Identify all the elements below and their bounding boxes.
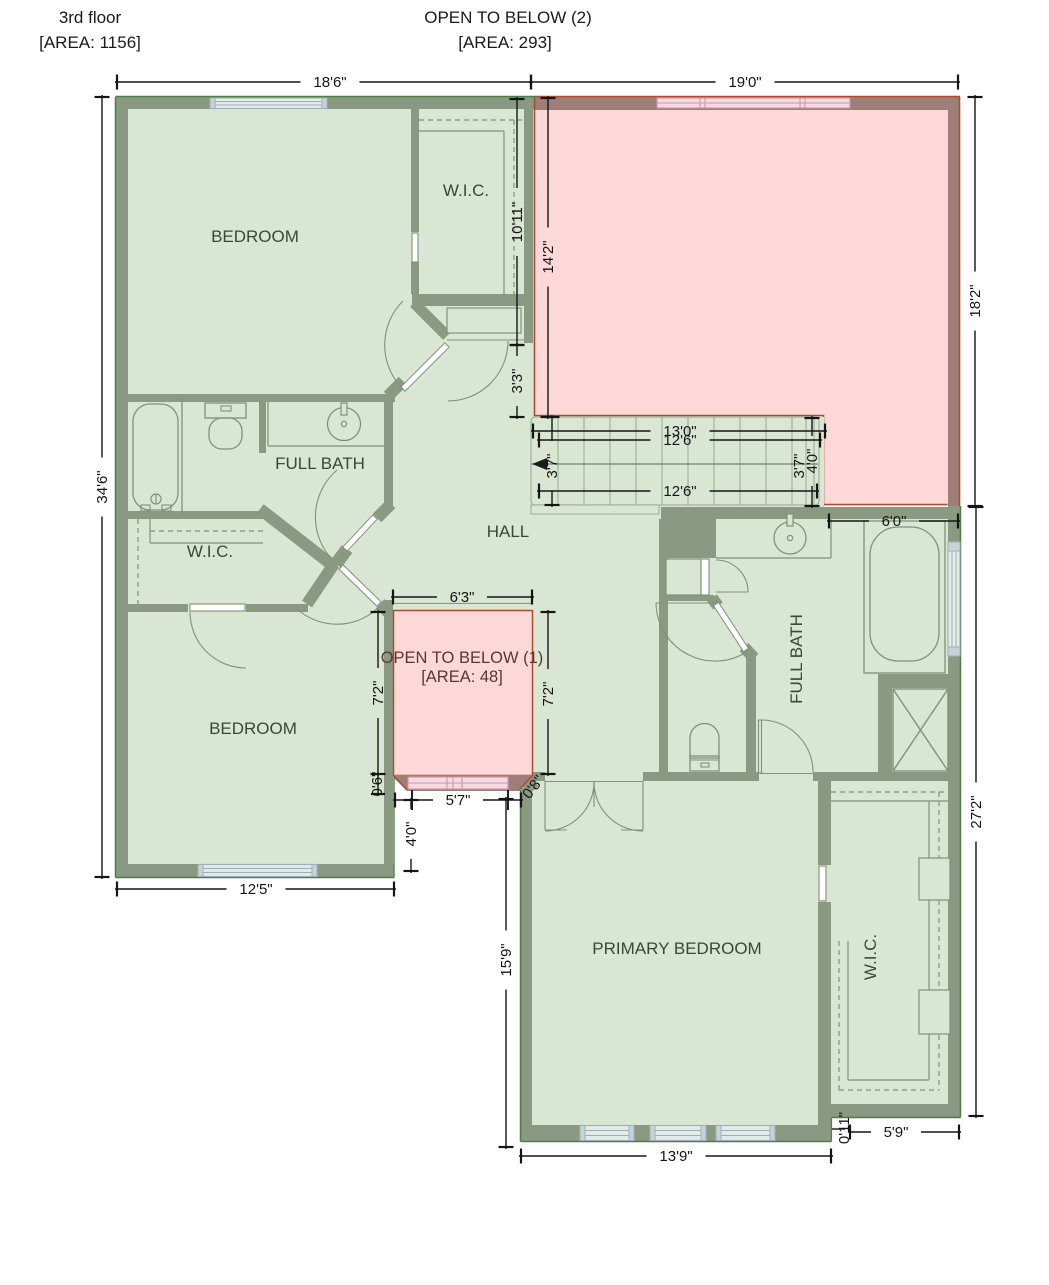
svg-text:FULL BATH: FULL BATH: [275, 454, 365, 473]
svg-text:12'6": 12'6": [663, 483, 696, 500]
svg-text:W.I.C.: W.I.C.: [443, 181, 489, 200]
svg-text:14'2": 14'2": [540, 240, 557, 273]
svg-text:13'9": 13'9": [659, 1148, 692, 1165]
svg-text:7'2": 7'2": [540, 682, 557, 707]
svg-text:5'7": 5'7": [446, 792, 471, 809]
svg-text:3'7": 3'7": [544, 454, 561, 479]
svg-text:W.I.C.: W.I.C.: [187, 542, 233, 561]
svg-text:34'6": 34'6": [94, 470, 111, 503]
svg-text:OPEN TO BELOW (1): OPEN TO BELOW (1): [381, 649, 544, 667]
svg-text:6'3": 6'3": [450, 589, 475, 606]
svg-text:BEDROOM: BEDROOM: [209, 719, 297, 738]
svg-text:4'0": 4'0": [403, 822, 420, 847]
svg-text:12'6": 12'6": [663, 432, 696, 449]
svg-text:0'6": 0'6": [369, 772, 386, 797]
svg-text:10'11": 10'11": [509, 202, 526, 242]
svg-text:15'9": 15'9": [498, 943, 515, 976]
svg-text:5'9": 5'9": [884, 1124, 909, 1141]
svg-text:18'6": 18'6": [313, 74, 346, 91]
svg-text:[AREA: 48]: [AREA: 48]: [421, 668, 503, 686]
svg-text:HALL: HALL: [487, 522, 530, 541]
svg-text:BEDROOM: BEDROOM: [211, 227, 299, 246]
svg-text:3rd floor: 3rd floor: [59, 8, 122, 27]
svg-text:3'3": 3'3": [509, 369, 526, 394]
svg-text:OPEN TO BELOW (2): OPEN TO BELOW (2): [424, 8, 592, 27]
svg-text:6'0": 6'0": [882, 513, 907, 530]
svg-text:[AREA: 1156]: [AREA: 1156]: [39, 33, 141, 52]
svg-text:0'11": 0'11": [836, 1112, 853, 1144]
svg-text:[AREA: 293]: [AREA: 293]: [458, 33, 552, 52]
svg-text:27'2": 27'2": [968, 795, 985, 828]
svg-text:12'5": 12'5": [239, 881, 272, 898]
svg-text:7'2": 7'2": [370, 681, 387, 706]
svg-text:18'2": 18'2": [967, 284, 984, 317]
svg-text:FULL BATH: FULL BATH: [787, 614, 806, 704]
svg-text:PRIMARY BEDROOM: PRIMARY BEDROOM: [592, 939, 761, 958]
svg-text:W.I.C.: W.I.C.: [861, 934, 880, 980]
svg-text:19'0": 19'0": [728, 74, 761, 91]
svg-text:3'7": 3'7": [791, 454, 808, 479]
